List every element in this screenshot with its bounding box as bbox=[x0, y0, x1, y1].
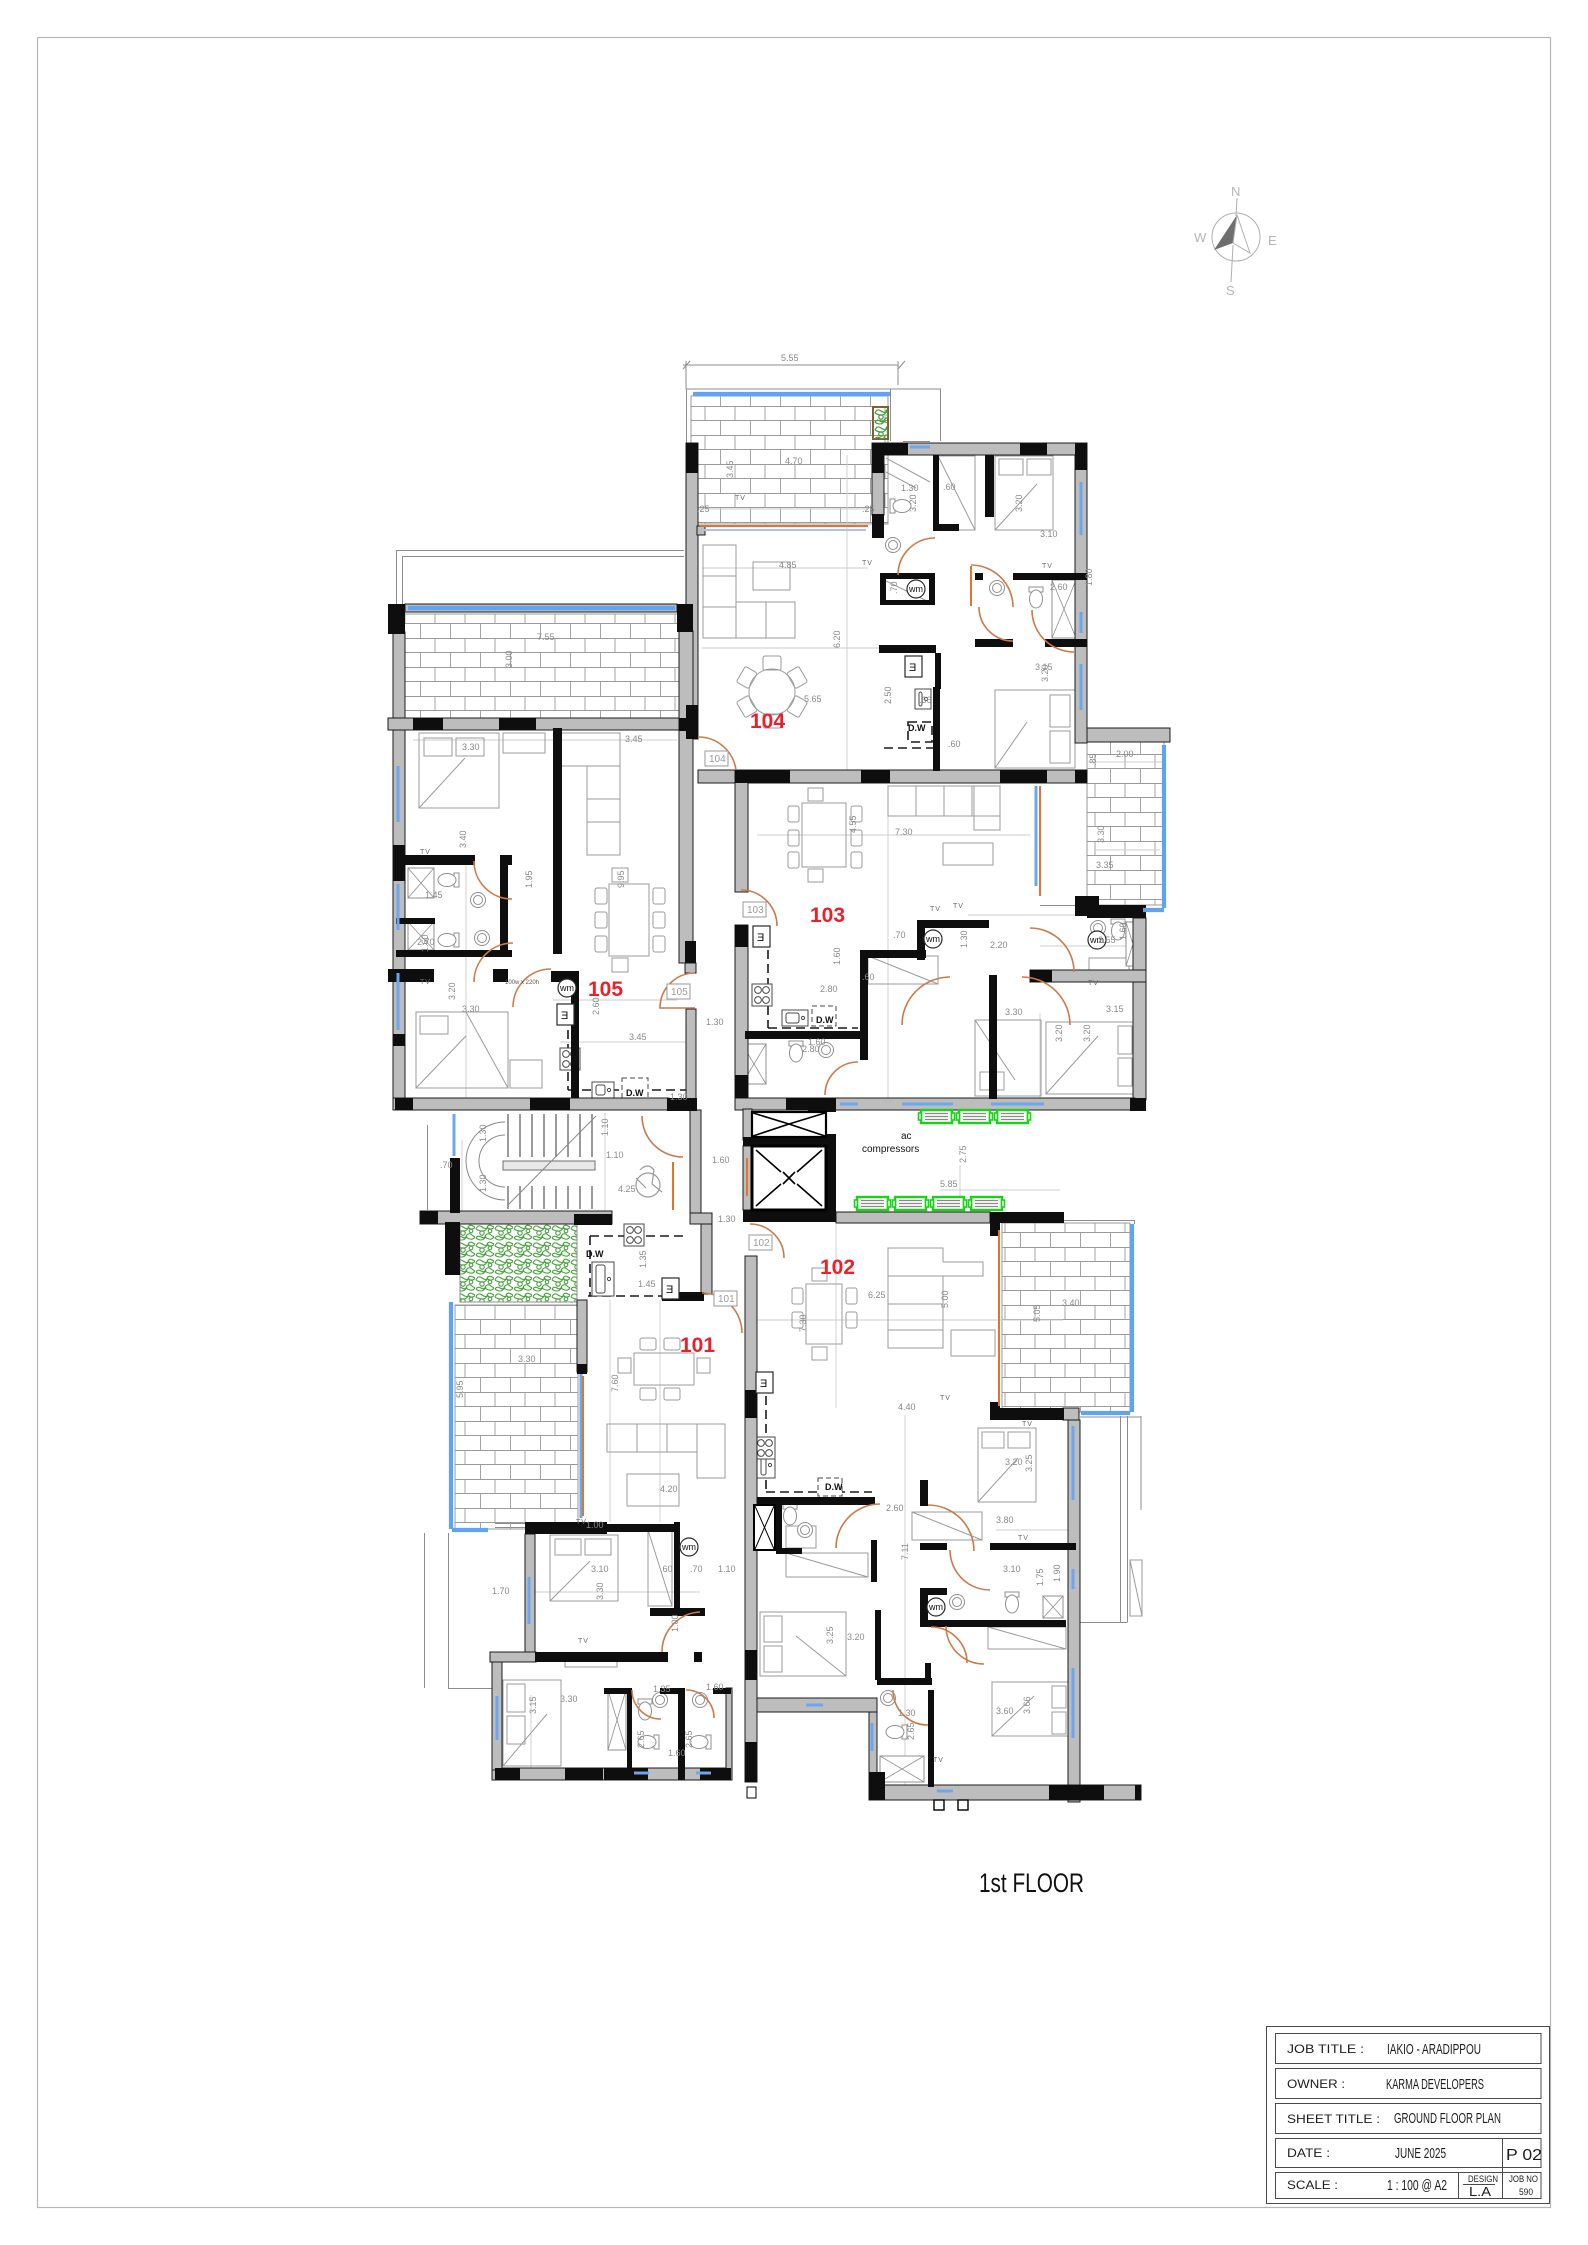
svg-text:D.W: D.W bbox=[816, 1015, 834, 1025]
svg-text:6.25: 6.25 bbox=[868, 1290, 886, 1300]
svg-text:GROUND FLOOR PLAN: GROUND FLOOR PLAN bbox=[1394, 2110, 1501, 2127]
svg-text:3.30: 3.30 bbox=[462, 1004, 480, 1014]
svg-text:1.60: 1.60 bbox=[706, 1682, 724, 1692]
svg-text:1.30: 1.30 bbox=[959, 930, 969, 948]
svg-text:1.30: 1.30 bbox=[898, 1708, 916, 1718]
svg-text:1.75: 1.75 bbox=[1035, 1568, 1045, 1586]
svg-text:.70: .70 bbox=[440, 1160, 453, 1170]
svg-text:S: S bbox=[1226, 283, 1235, 298]
svg-text:ac: ac bbox=[901, 1131, 912, 1142]
svg-text:1.30: 1.30 bbox=[478, 1124, 488, 1142]
svg-text:104: 104 bbox=[709, 754, 726, 765]
svg-text:103: 103 bbox=[810, 904, 845, 927]
svg-text:2.65: 2.65 bbox=[684, 1730, 694, 1748]
svg-text:4.25: 4.25 bbox=[618, 1184, 636, 1194]
svg-text:1.45: 1.45 bbox=[425, 890, 443, 900]
svg-text:wm: wm bbox=[908, 584, 923, 594]
svg-text:3.30: 3.30 bbox=[462, 742, 480, 752]
svg-text:3.20: 3.20 bbox=[847, 1632, 865, 1642]
svg-text:101: 101 bbox=[680, 1334, 715, 1357]
svg-text:1.60: 1.60 bbox=[712, 1155, 730, 1165]
svg-text:TV: TV bbox=[930, 906, 941, 913]
svg-text:1.45: 1.45 bbox=[638, 1279, 656, 1289]
svg-text:2.65: 2.65 bbox=[906, 1722, 916, 1740]
svg-text:Ǝ: Ǝ bbox=[561, 1010, 568, 1022]
svg-text:5.85: 5.85 bbox=[940, 1179, 958, 1189]
svg-text:compressors: compressors bbox=[862, 1144, 919, 1155]
svg-text:3.10: 3.10 bbox=[1003, 1564, 1021, 1574]
svg-text:2.00: 2.00 bbox=[1116, 749, 1134, 759]
svg-text:4.55: 4.55 bbox=[848, 815, 858, 833]
svg-text:102: 102 bbox=[753, 1238, 770, 1249]
svg-text:1st FLOOR: 1st FLOOR bbox=[979, 1868, 1084, 1898]
svg-text:3.66: 3.66 bbox=[1022, 1696, 1032, 1714]
svg-text:3.30: 3.30 bbox=[1096, 825, 1106, 843]
svg-text:1.80: 1.80 bbox=[1084, 568, 1094, 586]
svg-text:TV: TV bbox=[420, 849, 431, 856]
svg-text:1.35: 1.35 bbox=[638, 1250, 648, 1268]
svg-text:Ǝ: Ǝ bbox=[909, 662, 916, 674]
svg-text:1 : 100 @ A2: 1 : 100 @ A2 bbox=[1387, 2177, 1447, 2194]
svg-text:.25: .25 bbox=[697, 504, 710, 514]
svg-text:KARMA DEVELOPERS: KARMA DEVELOPERS bbox=[1386, 2076, 1484, 2093]
svg-text:3.20: 3.20 bbox=[1082, 1024, 1092, 1042]
svg-text:2.75: 2.75 bbox=[958, 1145, 968, 1163]
svg-text:1.10: 1.10 bbox=[718, 1564, 736, 1574]
svg-text:1.30: 1.30 bbox=[901, 483, 919, 493]
svg-text:3.35: 3.35 bbox=[1096, 860, 1114, 870]
svg-text:3.40: 3.40 bbox=[1062, 1298, 1080, 1308]
svg-text:3.20: 3.20 bbox=[1005, 1457, 1023, 1467]
svg-text:1.60: 1.60 bbox=[1118, 922, 1128, 940]
svg-text:.60: .60 bbox=[948, 739, 961, 749]
svg-text:Ǝ: Ǝ bbox=[757, 932, 764, 944]
svg-text:105: 105 bbox=[671, 987, 688, 998]
svg-text:1.35: 1.35 bbox=[653, 1684, 671, 1694]
svg-text:3.80: 3.80 bbox=[996, 1515, 1014, 1525]
svg-text:5.05: 5.05 bbox=[1032, 1304, 1042, 1322]
svg-text:3.45: 3.45 bbox=[625, 734, 643, 744]
svg-text:101: 101 bbox=[718, 1294, 735, 1305]
svg-text:590: 590 bbox=[1519, 2187, 1533, 2198]
svg-text:D.W: D.W bbox=[908, 723, 926, 733]
svg-text:SHEET TITLE :: SHEET TITLE : bbox=[1287, 2112, 1380, 2126]
svg-text:3.15: 3.15 bbox=[528, 1696, 538, 1714]
svg-text:1.70: 1.70 bbox=[492, 1586, 510, 1596]
svg-text:OWNER :: OWNER : bbox=[1287, 2077, 1345, 2091]
svg-text:7.11: 7.11 bbox=[900, 1543, 910, 1560]
svg-text:2.60: 2.60 bbox=[591, 997, 601, 1015]
svg-text:2.55: 2.55 bbox=[1098, 935, 1116, 945]
svg-text:3.10: 3.10 bbox=[591, 1564, 609, 1574]
svg-text:TV: TV bbox=[940, 1395, 951, 1402]
svg-text:3.20: 3.20 bbox=[1014, 494, 1024, 512]
svg-text:1.60: 1.60 bbox=[420, 934, 430, 952]
svg-text:2.65: 2.65 bbox=[636, 1730, 646, 1748]
svg-text:Ǝ: Ǝ bbox=[666, 1284, 673, 1296]
svg-text:D.W: D.W bbox=[626, 1088, 644, 1098]
svg-text:3.30: 3.30 bbox=[560, 1694, 578, 1704]
svg-text:.70: .70 bbox=[893, 930, 906, 940]
svg-text:5.00: 5.00 bbox=[940, 1290, 950, 1308]
svg-text:1.00: 1.00 bbox=[670, 1614, 680, 1632]
svg-text:1.30: 1.30 bbox=[478, 1174, 488, 1192]
svg-text:.25: .25 bbox=[862, 504, 875, 514]
svg-text:1.95: 1.95 bbox=[524, 870, 534, 888]
svg-text:2.50: 2.50 bbox=[883, 686, 893, 704]
svg-text:.60: .60 bbox=[660, 1564, 673, 1574]
svg-text:IAKIO - ARADIPPOU: IAKIO - ARADIPPOU bbox=[1387, 2041, 1481, 2058]
svg-text:1.00: 1.00 bbox=[586, 1520, 604, 1530]
svg-text:4.20: 4.20 bbox=[660, 1484, 678, 1494]
svg-text:.66: .66 bbox=[919, 695, 932, 705]
svg-text:7.30: 7.30 bbox=[895, 827, 913, 837]
svg-text:104: 104 bbox=[750, 710, 785, 733]
svg-text:5.55: 5.55 bbox=[781, 353, 799, 363]
svg-text:TV: TV bbox=[1042, 563, 1053, 570]
svg-text:JUNE 2025: JUNE 2025 bbox=[1395, 2145, 1446, 2162]
svg-text:3.45: 3.45 bbox=[725, 460, 735, 478]
svg-text:N: N bbox=[1231, 184, 1240, 199]
svg-text:.60: .60 bbox=[943, 482, 956, 492]
svg-text:7.30: 7.30 bbox=[798, 1314, 808, 1332]
svg-text:4.85: 4.85 bbox=[779, 560, 797, 570]
svg-text:D.W: D.W bbox=[586, 1249, 604, 1259]
svg-text:3.45: 3.45 bbox=[629, 1032, 647, 1042]
svg-text:DESIGN: DESIGN bbox=[1468, 2174, 1498, 2184]
svg-text:wm: wm bbox=[928, 1602, 943, 1612]
svg-text:2.80: 2.80 bbox=[802, 1044, 820, 1054]
svg-text:.60: .60 bbox=[862, 972, 875, 982]
svg-text:E: E bbox=[1268, 233, 1277, 248]
svg-text:3.25: 3.25 bbox=[825, 1626, 835, 1644]
svg-text:TV: TV bbox=[420, 979, 431, 986]
svg-text:3.00: 3.00 bbox=[504, 650, 514, 668]
svg-text:3.25: 3.25 bbox=[1024, 1454, 1034, 1472]
svg-text:3.20: 3.20 bbox=[908, 494, 918, 512]
svg-text:TV: TV bbox=[933, 1757, 944, 1764]
svg-text:JOB TITLE :: JOB TITLE : bbox=[1287, 2042, 1364, 2056]
svg-text:2.60: 2.60 bbox=[886, 1503, 904, 1513]
svg-text:1.30: 1.30 bbox=[670, 1092, 688, 1102]
svg-text:TV: TV bbox=[1022, 1421, 1033, 1428]
svg-text:P 02: P 02 bbox=[1506, 2147, 1542, 2164]
svg-text:5.95: 5.95 bbox=[455, 1380, 465, 1398]
svg-text:TV: TV bbox=[1018, 1535, 1029, 1542]
svg-text:6.20: 6.20 bbox=[832, 630, 842, 648]
svg-text:W: W bbox=[1194, 230, 1207, 245]
svg-text:1.30: 1.30 bbox=[718, 1214, 736, 1224]
svg-text:3.15: 3.15 bbox=[1106, 1004, 1124, 1014]
svg-text:Ǝ: Ǝ bbox=[760, 1378, 767, 1390]
svg-text:TV: TV bbox=[578, 1638, 589, 1645]
svg-text:.70: .70 bbox=[889, 581, 899, 594]
svg-text:7.55: 7.55 bbox=[537, 632, 555, 642]
svg-text:100w x 220h: 100w x 220h bbox=[505, 980, 539, 986]
svg-text:3.10: 3.10 bbox=[1040, 529, 1058, 539]
svg-text:3.20: 3.20 bbox=[1040, 664, 1050, 682]
svg-text:.85: .85 bbox=[1088, 753, 1098, 766]
svg-text:DATE :: DATE : bbox=[1287, 2146, 1330, 2160]
svg-text:4.40: 4.40 bbox=[898, 1402, 916, 1412]
svg-text:wm: wm bbox=[925, 934, 940, 944]
svg-text:L.A: L.A bbox=[1469, 2184, 1491, 2199]
svg-text:3.40: 3.40 bbox=[458, 830, 468, 848]
svg-text:JOB NO: JOB NO bbox=[1509, 2174, 1538, 2184]
svg-text:1.60: 1.60 bbox=[668, 1748, 686, 1758]
svg-text:TV: TV bbox=[1088, 980, 1099, 987]
svg-text:3.20: 3.20 bbox=[1054, 1024, 1064, 1042]
svg-text:TV: TV bbox=[735, 495, 746, 502]
svg-text:wm: wm bbox=[681, 1542, 696, 1552]
svg-text:1.30: 1.30 bbox=[706, 1017, 724, 1027]
svg-text:D.W: D.W bbox=[825, 1482, 843, 1492]
svg-text:wm: wm bbox=[559, 983, 574, 993]
svg-text:1.60: 1.60 bbox=[832, 947, 842, 965]
svg-text:1.90: 1.90 bbox=[1052, 1564, 1062, 1582]
svg-text:3.60: 3.60 bbox=[996, 1706, 1014, 1716]
svg-text:2.80: 2.80 bbox=[820, 984, 838, 994]
svg-text:2.20: 2.20 bbox=[990, 940, 1008, 950]
svg-text:102: 102 bbox=[820, 1256, 855, 1279]
svg-text:1.10: 1.10 bbox=[600, 1118, 610, 1136]
svg-text:TV: TV bbox=[953, 903, 964, 910]
svg-text:5.65: 5.65 bbox=[804, 694, 822, 704]
svg-text:9.95: 9.95 bbox=[616, 870, 626, 888]
svg-text:103: 103 bbox=[747, 905, 764, 916]
svg-text:TV: TV bbox=[862, 560, 873, 567]
svg-text:SCALE :: SCALE : bbox=[1287, 2178, 1338, 2192]
svg-text:1.10: 1.10 bbox=[606, 1150, 624, 1160]
svg-text:3.30: 3.30 bbox=[595, 1582, 605, 1600]
svg-text:.70: .70 bbox=[690, 1564, 703, 1574]
svg-text:3.30: 3.30 bbox=[1005, 1007, 1023, 1017]
svg-text:4.70: 4.70 bbox=[785, 456, 803, 466]
svg-text:2.60: 2.60 bbox=[1050, 582, 1068, 592]
svg-text:3.30: 3.30 bbox=[518, 1354, 536, 1364]
svg-text:3.20: 3.20 bbox=[447, 982, 457, 1000]
svg-text:7.60: 7.60 bbox=[610, 1374, 620, 1392]
